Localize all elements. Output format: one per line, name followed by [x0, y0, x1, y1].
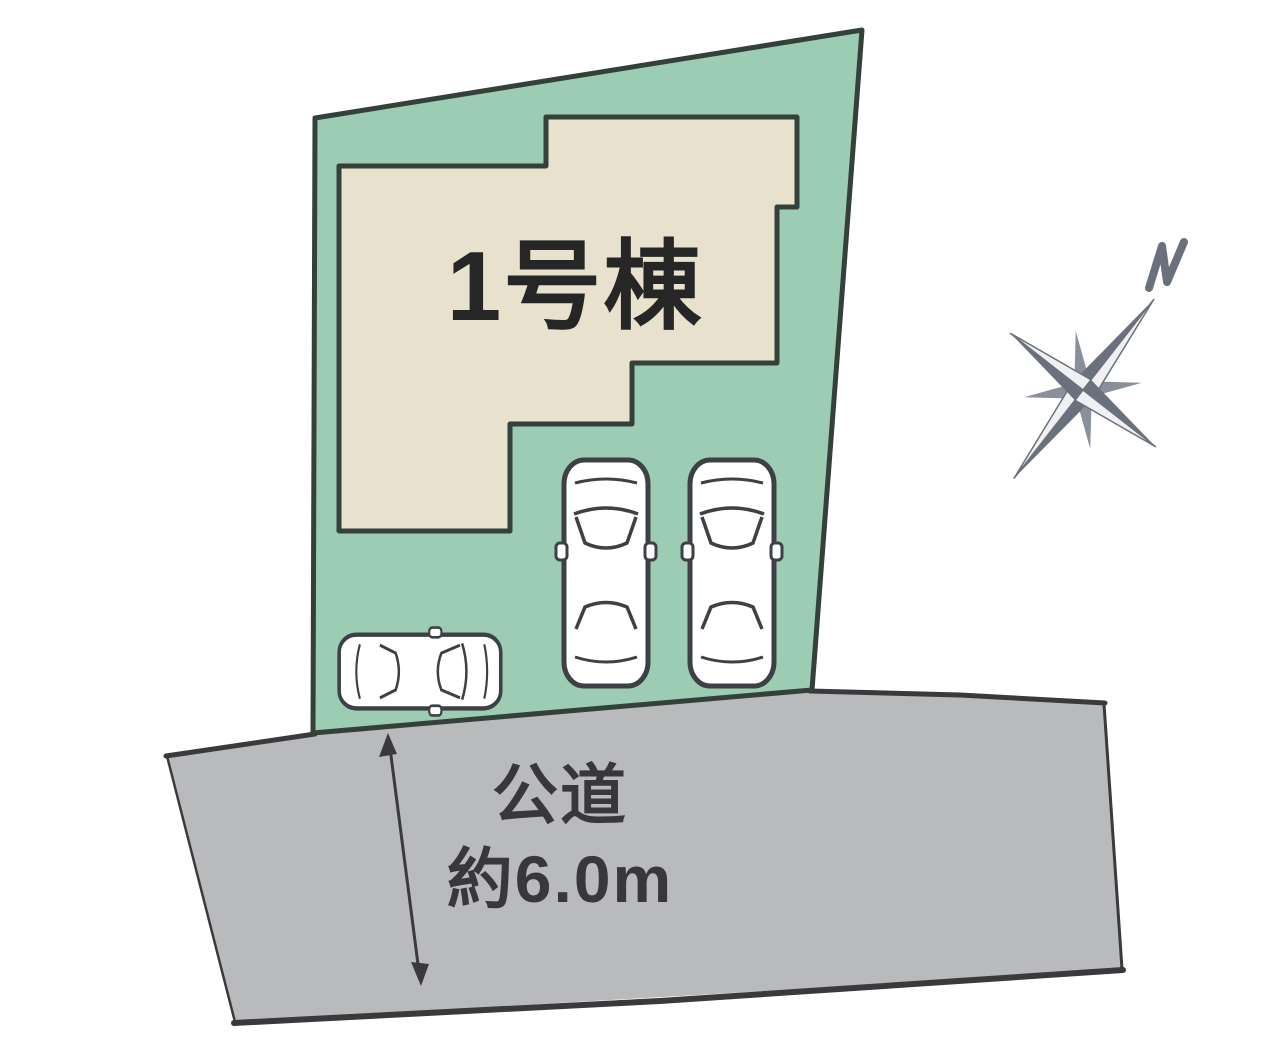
road-label: 公道 — [492, 758, 628, 832]
building-label: 1号棟 — [447, 231, 704, 341]
compass-rose-icon: N — [942, 242, 1227, 535]
car-icon — [682, 460, 782, 686]
diagram-svg: 1号棟 公道 約6.0m — [0, 0, 1280, 1052]
plot-layout-diagram: 1号棟 公道 約6.0m — [0, 0, 1280, 1052]
car-icon — [556, 460, 656, 686]
car-icon — [339, 628, 501, 716]
road-width-label: 約6.0m — [447, 842, 673, 916]
